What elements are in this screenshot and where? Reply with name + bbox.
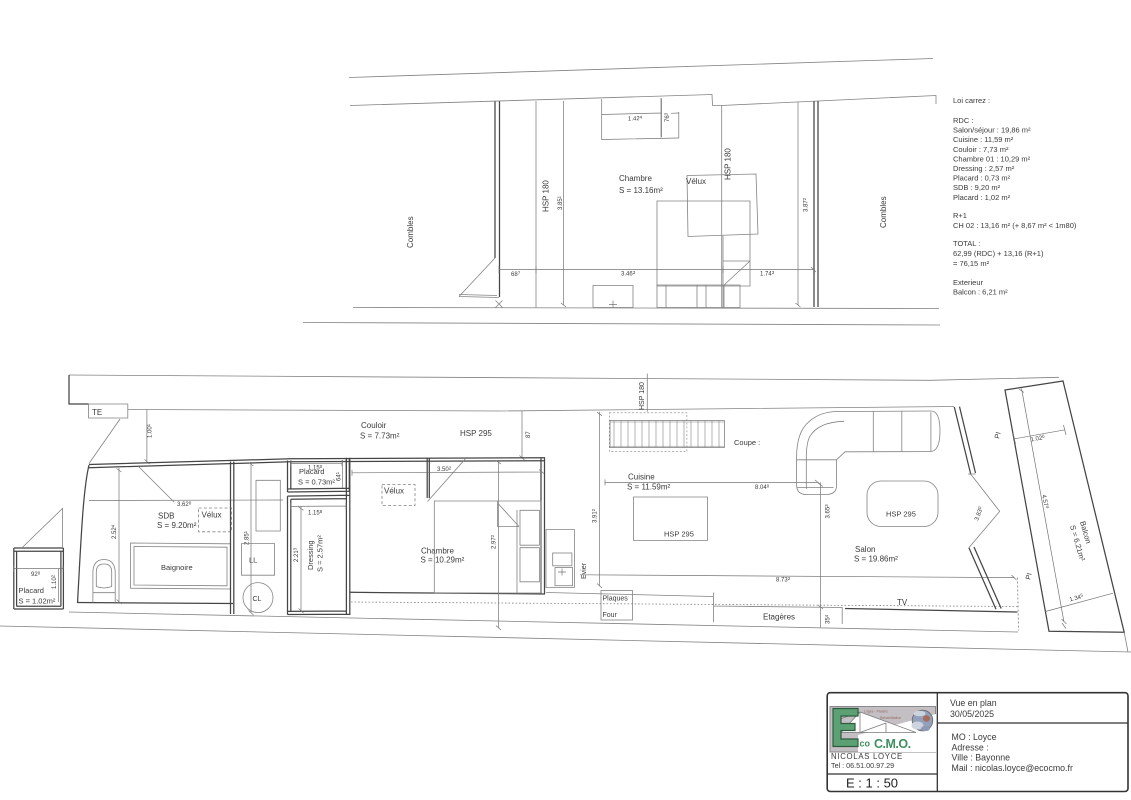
svg-text:Chambre: Chambre (421, 547, 454, 556)
svg-text:87: 87 (526, 431, 532, 438)
svg-text:Tel : 06.51.00.97.29: Tel : 06.51.00.97.29 (831, 761, 894, 770)
svg-text:CH 02 : 13,16 m² (+ 8,67 m² <: CH 02 : 13,16 m² (+ 8,67 m² < 1m80) (953, 221, 1077, 230)
svg-text:LL: LL (249, 556, 257, 565)
svg-text:TOTAL :: TOTAL : (953, 239, 980, 248)
svg-text:HSP 180: HSP 180 (639, 382, 646, 410)
svg-text:Vélux: Vélux (202, 511, 222, 520)
svg-text:TV: TV (897, 598, 908, 607)
svg-text:S = 19.86m²: S = 19.86m² (854, 555, 898, 564)
svg-text:Adresse :: Adresse : (952, 742, 989, 752)
svg-text:HSP 295: HSP 295 (460, 429, 492, 438)
svg-text:S = 13.16m²: S = 13.16m² (619, 186, 663, 195)
svg-text:Mail : nicolas.loyce@ecocmo.fr: Mail : nicolas.loyce@ecocmo.fr (952, 763, 1073, 773)
svg-text:Salon: Salon (855, 545, 875, 554)
svg-text:NICOLAS LOYCE: NICOLAS LOYCE (831, 752, 903, 761)
svg-text:HSP 295: HSP 295 (886, 510, 916, 519)
svg-text:CL: CL (253, 596, 262, 603)
svg-text:SDB: SDB (158, 512, 174, 521)
svg-text:Loi carrez :: Loi carrez : (953, 96, 990, 105)
svg-text:= 76,15 m²: = 76,15 m² (953, 259, 990, 268)
svg-text:Chambre: Chambre (619, 174, 652, 183)
svg-text:Chambre 01 : 10,29 m²: Chambre 01 : 10,29 m² (953, 154, 1031, 163)
svg-text:S = 7.73m²: S = 7.73m² (360, 432, 400, 441)
svg-text:Ville : Bayonne: Ville : Bayonne (952, 753, 1011, 763)
svg-text:Vélux: Vélux (686, 177, 706, 186)
svg-text:30/05/2025: 30/05/2025 (950, 709, 994, 719)
svg-text:Couloir : 7,73 m²: Couloir : 7,73 m² (953, 145, 1009, 154)
svg-text:Vue en plan: Vue en plan (950, 698, 997, 708)
svg-text:Cuisine : 11,59 m²: Cuisine : 11,59 m² (953, 135, 1014, 144)
svg-text:HSP 295: HSP 295 (664, 530, 694, 539)
svg-text:Placard : 1,02 m²: Placard : 1,02 m² (953, 193, 1011, 202)
svg-text:E : 1 : 50: E : 1 : 50 (846, 776, 898, 791)
svg-text:SDB : 9,20 m²: SDB : 9,20 m² (953, 183, 1001, 192)
svg-text:Cuisine: Cuisine (628, 473, 655, 482)
svg-text:Baignoire: Baignoire (161, 563, 193, 572)
svg-text:Combles: Combles (406, 216, 415, 248)
svg-text:S = 11.59m²: S = 11.59m² (627, 483, 671, 492)
svg-text:S = 0.73m²: S = 0.73m² (298, 478, 335, 487)
svg-text:Dressing : 2,57 m²: Dressing : 2,57 m² (953, 164, 1015, 173)
svg-text:Plaques: Plaques (603, 596, 629, 603)
svg-text:HSP 180: HSP 180 (724, 148, 733, 180)
svg-text:Dressing: Dressing (306, 540, 315, 570)
svg-text:Exterieur: Exterieur (953, 278, 984, 287)
svg-text:Salon/séjour : 19,86 m²: Salon/séjour : 19,86 m² (953, 126, 1031, 135)
svg-text:Placard: Placard (19, 586, 44, 595)
svg-text:S = 9.20m²: S = 9.20m² (157, 521, 197, 530)
svg-text:Etagères: Etagères (763, 613, 795, 622)
svg-text:Vélux: Vélux (384, 487, 404, 496)
svg-text:R+1: R+1 (953, 211, 967, 220)
svg-text:Four: Four (603, 612, 618, 619)
svg-text:S = 2.57m²: S = 2.57m² (316, 535, 325, 572)
svg-text:Balcon : 6,21 m²: Balcon : 6,21 m² (953, 288, 1008, 297)
svg-text:co: co (860, 739, 871, 749)
svg-text:Couloir: Couloir (361, 421, 387, 430)
svg-text:TE: TE (92, 408, 102, 417)
svg-text:S = 10.29m²: S = 10.29m² (421, 556, 465, 565)
svg-text:S = 1.02m²: S = 1.02m² (19, 597, 56, 606)
svg-text:MO : Loyce: MO : Loyce (952, 732, 997, 742)
svg-text:Loges - Plaisirs: Loges - Plaisirs (864, 710, 888, 714)
svg-text:C.M.O.: C.M.O. (874, 737, 911, 751)
svg-text:HSP 180: HSP 180 (542, 180, 551, 212)
svg-text:Réhabilitation: Réhabilitation (880, 716, 901, 720)
svg-text:Coupe :: Coupe : (734, 438, 760, 447)
svg-text:Evier: Evier (581, 562, 588, 579)
svg-text:RDC :: RDC : (953, 116, 973, 125)
svg-text:Placard : 0,73 m²: Placard : 0,73 m² (953, 174, 1011, 183)
svg-text:62,99 (RDC) + 13,16 (R+1): 62,99 (RDC) + 13,16 (R+1) (953, 249, 1044, 258)
svg-text:Combles: Combles (879, 196, 888, 228)
